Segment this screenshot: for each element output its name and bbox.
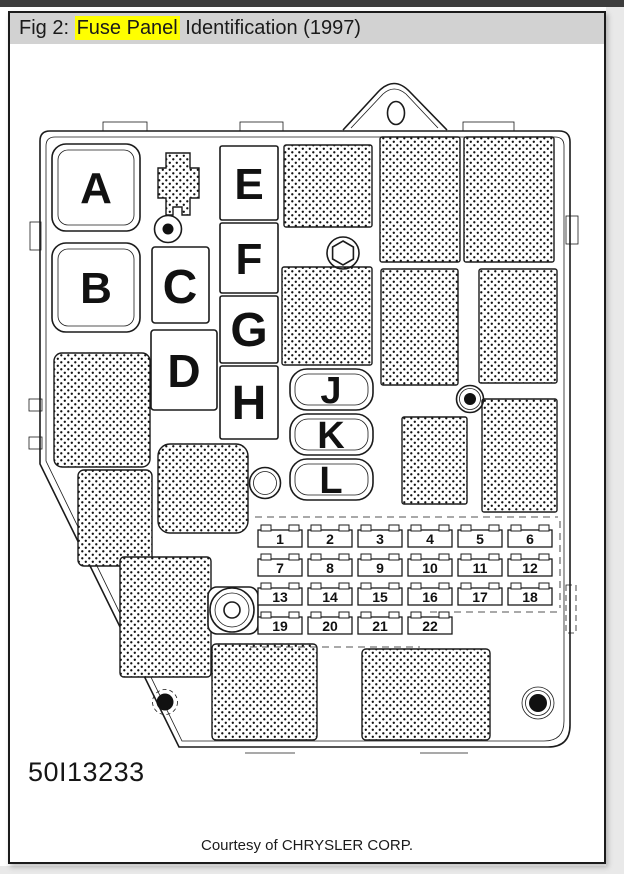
- figure-frame: Fig 2: Fuse Panel Identification (1997) …: [8, 11, 606, 864]
- figure-header: Fig 2: Fuse Panel Identification (1997): [10, 13, 604, 44]
- figure-title-highlight: Fuse Panel: [75, 16, 180, 40]
- bottom-margin: [0, 866, 624, 874]
- figure-title-suffix: Identification (1997): [180, 17, 361, 39]
- figure-title-prefix: Fig 2:: [19, 17, 75, 39]
- top-border-strip: [0, 0, 624, 7]
- right-margin: [606, 7, 624, 874]
- page: Fig 2: Fuse Panel Identification (1997) …: [0, 0, 624, 874]
- courtesy-caption: Courtesy of CHRYSLER CORP.: [10, 837, 604, 854]
